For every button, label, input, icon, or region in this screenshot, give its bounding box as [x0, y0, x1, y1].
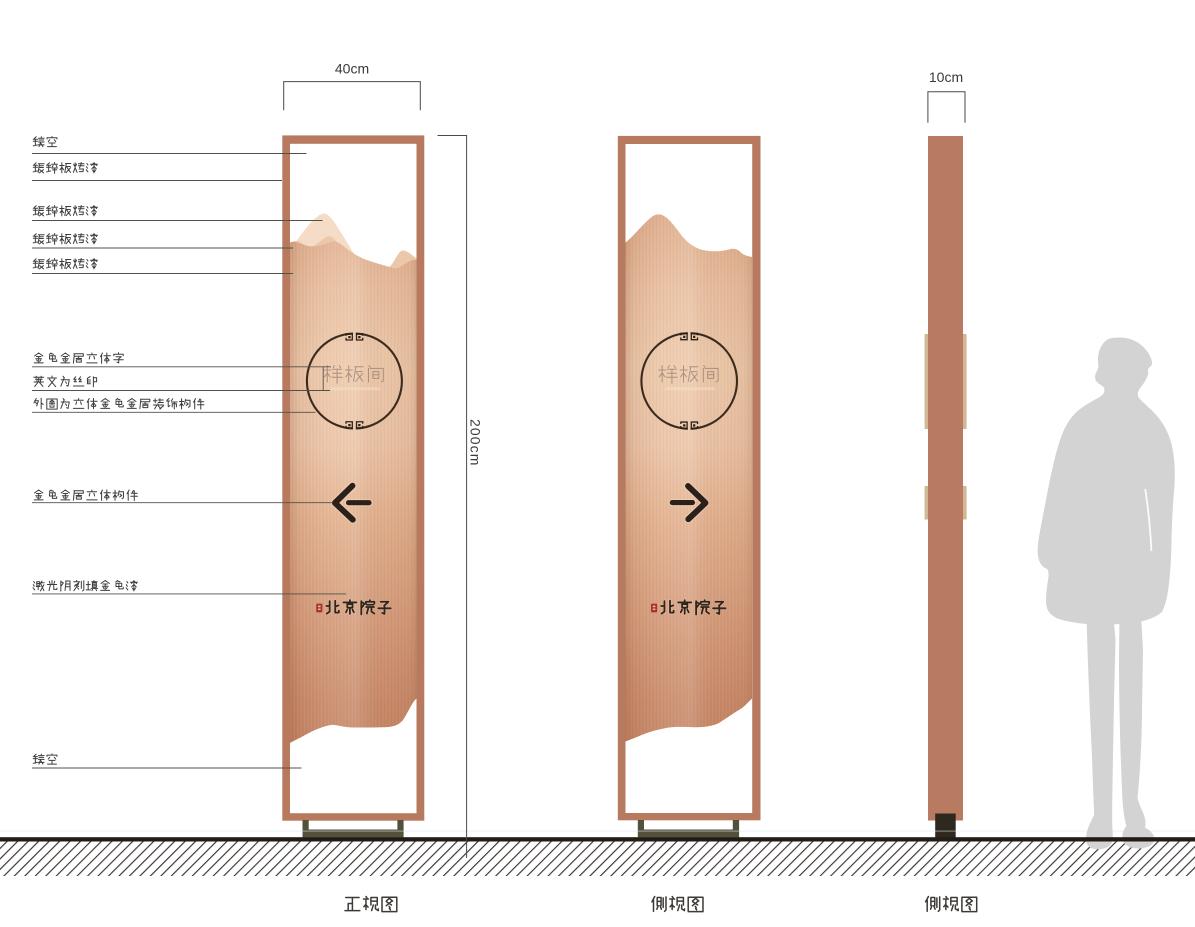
svg-text:40cm: 40cm	[335, 61, 369, 77]
svg-text:200cm: 200cm	[468, 419, 484, 467]
svg-text:10cm: 10cm	[929, 69, 963, 85]
